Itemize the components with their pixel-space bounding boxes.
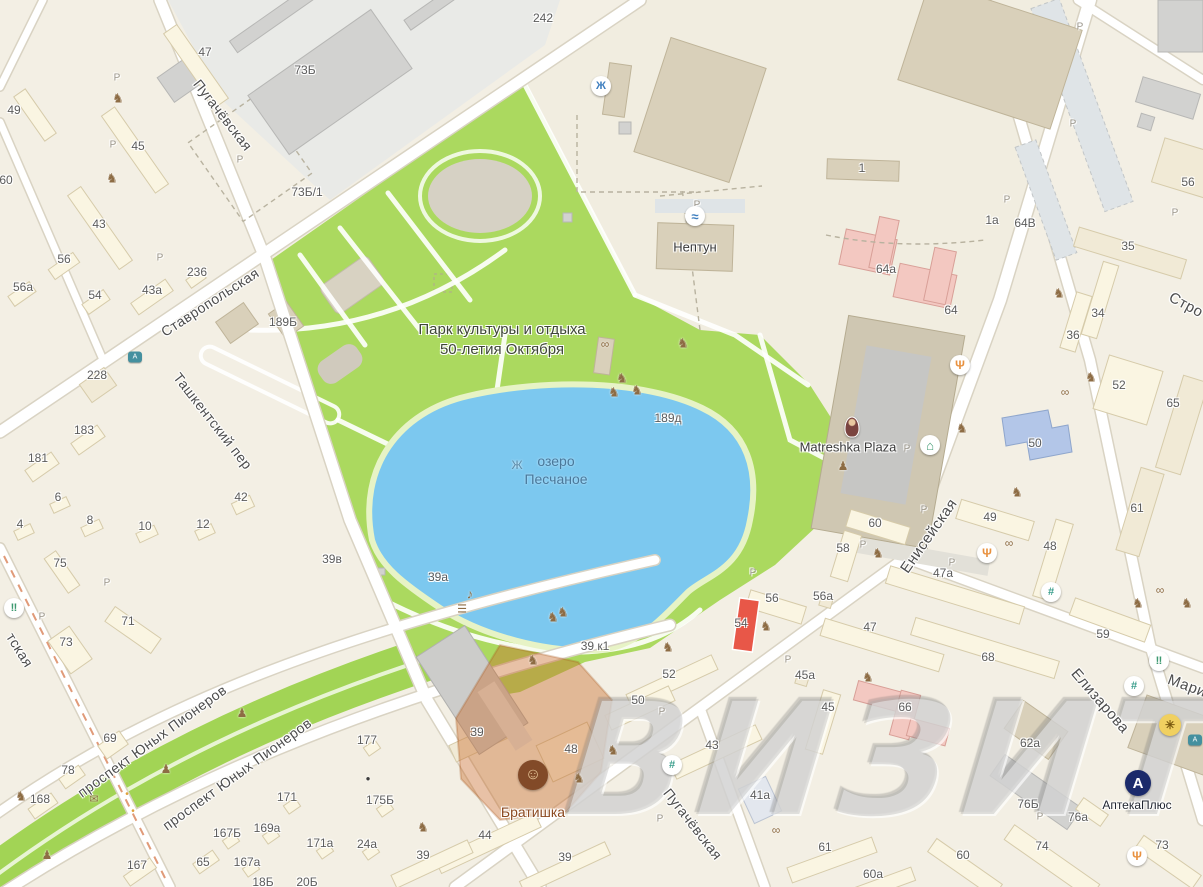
fountain-circle-icon[interactable]: Ж: [591, 76, 611, 96]
playground-icon: ♞: [1181, 597, 1193, 610]
poi-label-bratishka[interactable]: Братишка: [501, 804, 565, 820]
restaurant-icon[interactable]: Ψ: [1127, 846, 1147, 866]
statue-icon: ♟: [237, 707, 248, 719]
landmark-icon[interactable]: ✳: [1159, 714, 1181, 736]
fuel-drop-icon: ●: [366, 775, 371, 783]
playground-icon: ♞: [573, 772, 585, 785]
poi-label-neptun[interactable]: Нептун: [673, 240, 716, 255]
map-base: [0, 0, 1203, 887]
restaurant-icon[interactable]: Ψ: [977, 543, 997, 563]
playground-icon: ♞: [417, 821, 429, 834]
playground-icon: ♞: [1011, 486, 1023, 499]
playground-icon: ♞: [1053, 287, 1065, 300]
supermarket-icon[interactable]: #: [662, 755, 682, 775]
playground-icon: ♞: [760, 620, 772, 633]
playground-icon: ♞: [1132, 597, 1144, 610]
red-building-54: [732, 598, 759, 652]
playground-icon: ♞: [616, 372, 628, 385]
playground-icon: ♞: [662, 641, 674, 654]
playground-icon: ♞: [608, 386, 620, 399]
playground-icon: ♞: [557, 606, 569, 619]
playground-icon: ♞: [872, 547, 884, 560]
beer-shop-icon[interactable]: ‼: [1149, 651, 1169, 671]
dumbbell-icon: ∞: [772, 824, 781, 836]
playground-icon: ♞: [677, 337, 689, 350]
playground-icon: ♞: [607, 744, 619, 757]
pool-icon[interactable]: ≈: [685, 206, 705, 226]
apteka-logo-icon[interactable]: A: [1125, 770, 1151, 796]
bratishka-logo-icon[interactable]: ☺: [518, 760, 548, 790]
library-book-icon: ☰: [457, 605, 467, 616]
supermarket-icon[interactable]: #: [1124, 676, 1144, 696]
beer-shop-icon[interactable]: ‼: [4, 598, 24, 618]
dumbbell-icon: ∞: [1005, 537, 1014, 549]
statue-icon: ♟: [838, 460, 849, 472]
stage-mic-icon: ♪: [467, 588, 474, 601]
restaurant-icon[interactable]: Ψ: [950, 355, 970, 375]
map-canvas[interactable]: ВИЗИТ Парк культуры и отдыха 50-летия Ок…: [0, 0, 1203, 887]
poi-label-matreshka-plaza[interactable]: Matreshka Plaza: [800, 440, 897, 455]
playground-icon: ♞: [106, 172, 118, 185]
statue-icon: ♟: [161, 763, 172, 775]
traffic-light-icon: •: [131, 807, 135, 817]
playground-icon: ♞: [956, 422, 968, 435]
playground-icon: ♞: [15, 790, 27, 803]
playground-icon: ♞: [1085, 371, 1097, 384]
statue-icon: ♟: [42, 849, 53, 861]
playground-icon: ♞: [631, 384, 643, 397]
playground-icon: ♞: [527, 654, 539, 667]
hotel-icon[interactable]: ⌂: [920, 435, 940, 455]
dumbbell-icon: ∞: [601, 338, 610, 350]
bus-stop-icon[interactable]: А: [1188, 735, 1202, 746]
dumbbell-icon: ∞: [1061, 386, 1070, 398]
playground-icon: ♞: [862, 671, 874, 684]
playground-icon: ♞: [112, 92, 124, 105]
matryoshka-icon[interactable]: [845, 417, 860, 438]
supermarket-icon[interactable]: #: [1041, 582, 1061, 602]
mailbox-icon: ✉: [89, 795, 98, 806]
dumbbell-icon: ∞: [1156, 584, 1165, 596]
poi-label-apteka-plus[interactable]: АптекаПлюс: [1102, 798, 1171, 812]
fountain-icon: Ж: [511, 459, 522, 471]
bus-stop-icon[interactable]: А: [128, 352, 142, 363]
traffic-light-icon: •: [125, 790, 129, 800]
